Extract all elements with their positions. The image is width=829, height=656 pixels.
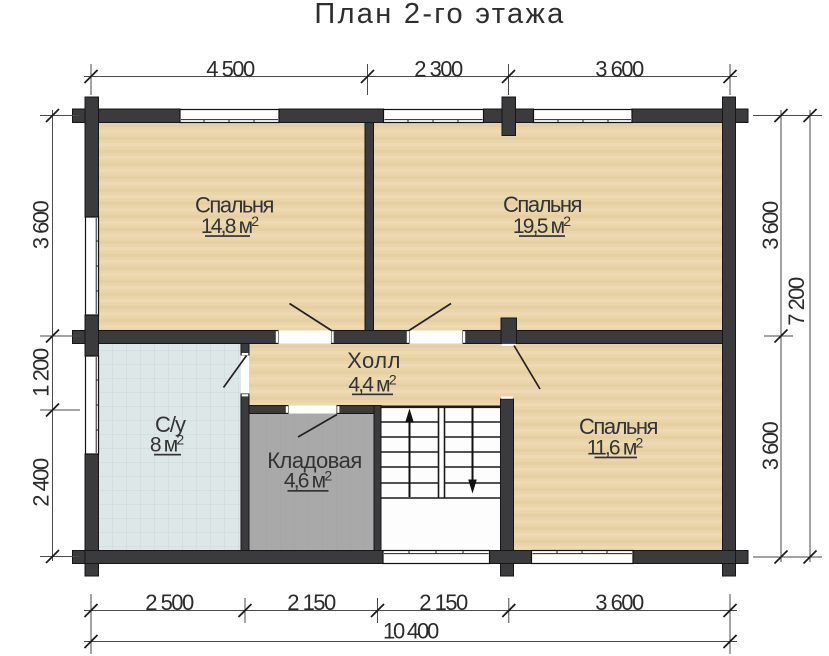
svg-text:2 500: 2 500 [145, 590, 194, 615]
svg-text:3 600: 3 600 [595, 590, 644, 615]
svg-text:7 200: 7 200 [784, 277, 809, 326]
svg-text:10 400: 10 400 [383, 619, 439, 644]
svg-text:3 600: 3 600 [758, 421, 783, 470]
svg-text:2 150: 2 150 [287, 590, 336, 615]
svg-text:1 200: 1 200 [29, 348, 54, 397]
svg-text:Спальня: Спальня [195, 193, 273, 218]
svg-text:4 500: 4 500 [206, 57, 255, 82]
svg-text:3 600: 3 600 [29, 200, 54, 249]
svg-text:Спальня: Спальня [579, 414, 657, 439]
svg-text:11,6 м2: 11,6 м2 [587, 435, 644, 460]
svg-text:14,8 м2: 14,8 м2 [201, 213, 259, 238]
svg-text:3 600: 3 600 [758, 201, 783, 250]
svg-text:2 150: 2 150 [419, 590, 468, 615]
svg-text:2 400: 2 400 [29, 458, 54, 507]
svg-text:3 600: 3 600 [595, 57, 644, 82]
svg-text:Холл: Холл [347, 348, 401, 373]
svg-text:2 300: 2 300 [414, 57, 463, 82]
svg-text:19,5 м2: 19,5 м2 [513, 213, 571, 238]
svg-text:План 2-го этажа: План 2-го этажа [314, 0, 565, 30]
